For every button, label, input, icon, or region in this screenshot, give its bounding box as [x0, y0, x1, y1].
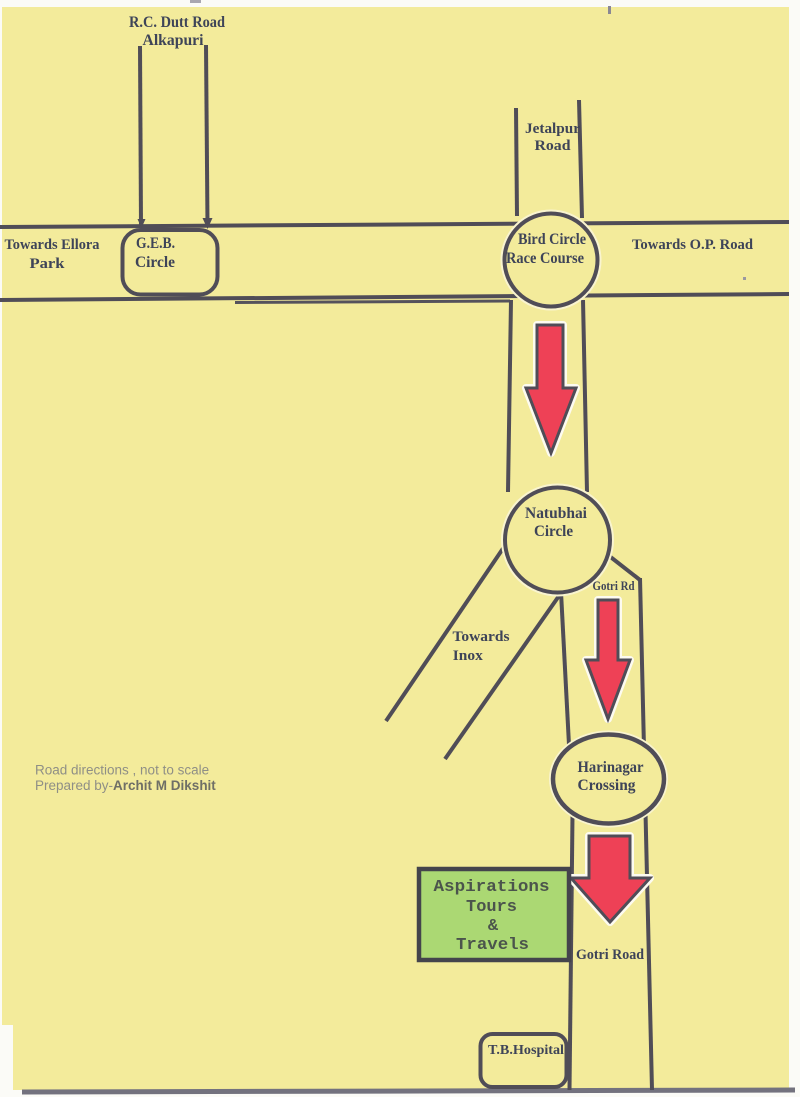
svg-text:Jetalpur: Jetalpur — [525, 121, 580, 137]
svg-text:Circle: Circle — [135, 254, 175, 271]
svg-text:Crossing: Crossing — [578, 777, 636, 794]
svg-text:Inox: Inox — [453, 648, 484, 664]
svg-text:Gotri Rd: Gotri Rd — [593, 579, 635, 593]
svg-text:Alkapuri: Alkapuri — [143, 32, 205, 49]
svg-text:Tours: Tours — [466, 898, 517, 917]
svg-text:Harinagar: Harinagar — [578, 759, 644, 776]
svg-text:Circle: Circle — [534, 523, 573, 540]
svg-text:Gotri Road: Gotri Road — [576, 947, 645, 963]
svg-text:T.B.Hospital: T.B.Hospital — [488, 1042, 564, 1057]
svg-text:&: & — [488, 917, 499, 936]
svg-text:Travels: Travels — [456, 936, 529, 955]
svg-text:Race Course: Race Course — [506, 250, 584, 267]
svg-text:Towards O.P. Road: Towards O.P. Road — [632, 237, 754, 253]
svg-text:R.C. Dutt Road: R.C. Dutt Road — [129, 14, 225, 31]
svg-text:Natubhai: Natubhai — [525, 505, 588, 522]
svg-text:Bird Circle: Bird Circle — [518, 231, 586, 248]
svg-text:Road directions , not to scale: Road directions , not to scale — [35, 763, 209, 778]
svg-text:Park: Park — [30, 256, 66, 272]
svg-text:Towards Ellora: Towards Ellora — [5, 237, 100, 253]
svg-text:Prepared by-Archit M Dikshit: Prepared by-Archit M Dikshit — [35, 778, 216, 793]
svg-text:Road: Road — [535, 138, 572, 154]
svg-text:Towards: Towards — [453, 629, 510, 645]
svg-text:Aspirations: Aspirations — [434, 878, 550, 897]
svg-text:G.E.B.: G.E.B. — [136, 235, 175, 252]
